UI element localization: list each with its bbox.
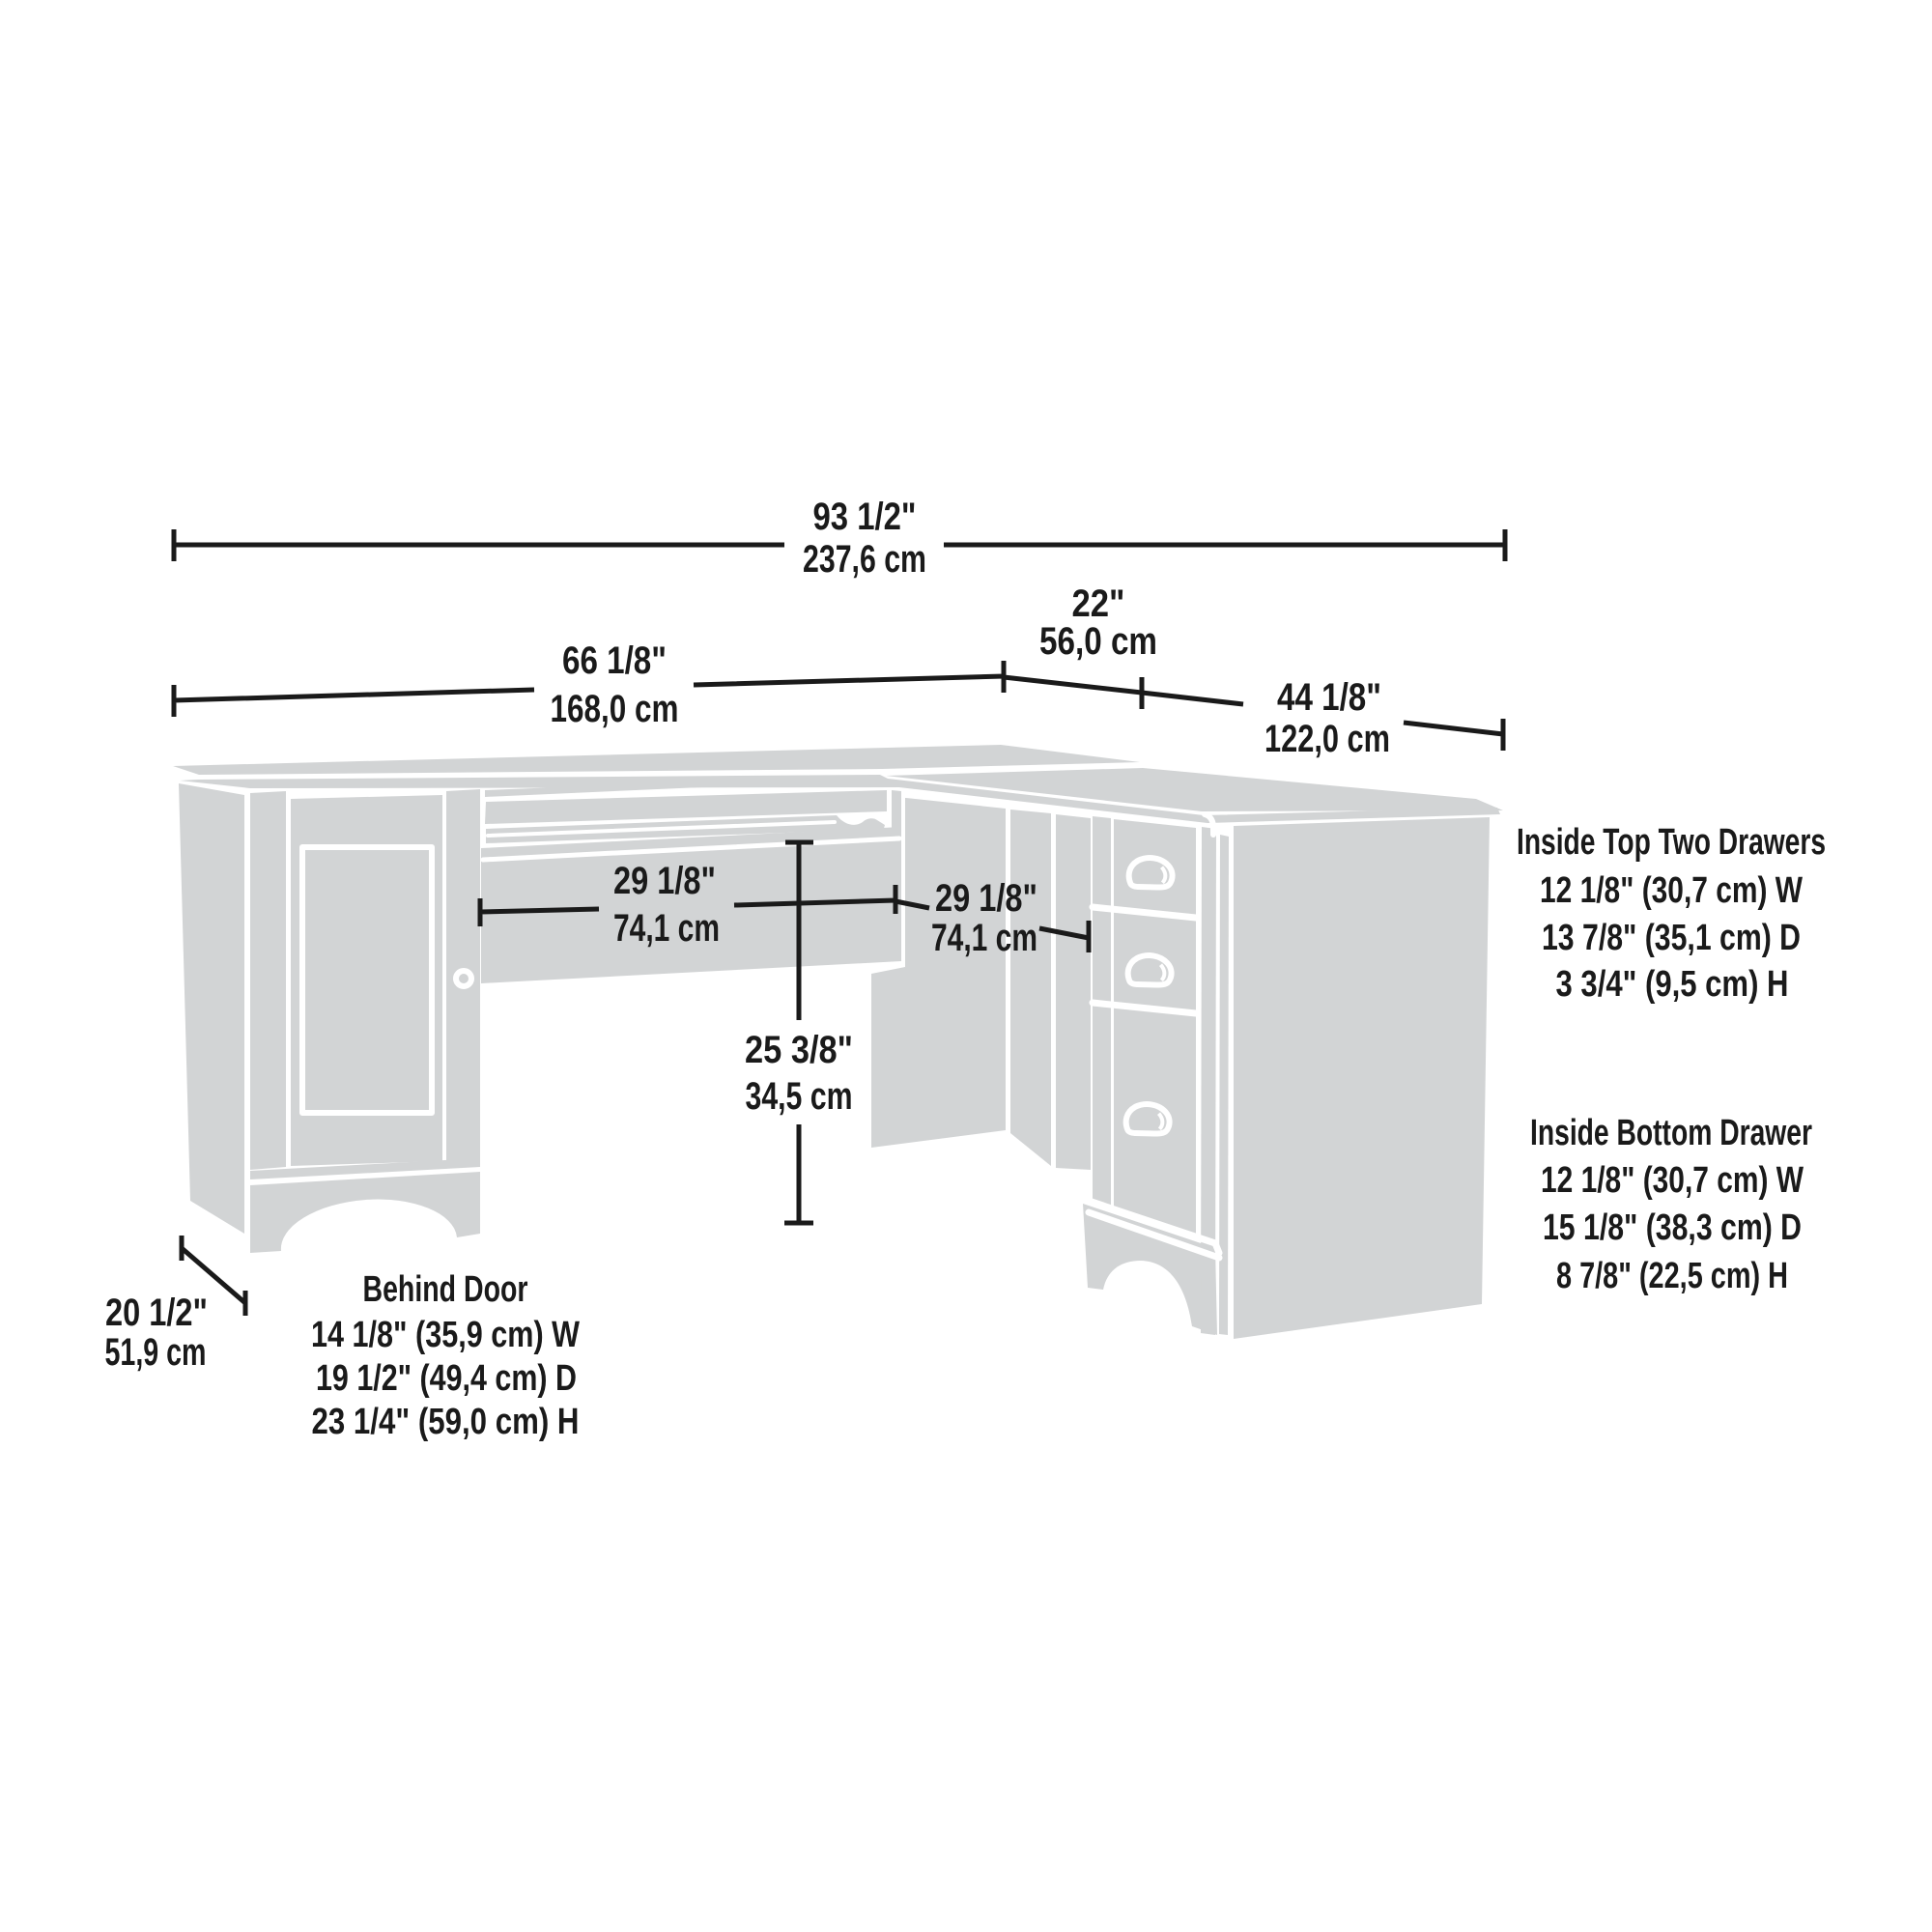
svg-text:51,9 cm: 51,9 cm [105, 1331, 207, 1374]
svg-text:Behind Door: Behind Door [363, 1269, 528, 1310]
svg-text:23 1/4" (59,0 cm) H: 23 1/4" (59,0 cm) H [312, 1402, 580, 1442]
svg-text:66 1/8": 66 1/8" [562, 639, 667, 682]
svg-text:74,1 cm: 74,1 cm [613, 907, 720, 950]
svg-text:237,6 cm: 237,6 cm [803, 538, 926, 581]
svg-text:93 1/2": 93 1/2" [813, 496, 917, 538]
svg-text:12 1/8" (30,7 cm) W: 12 1/8" (30,7 cm) W [1541, 1160, 1804, 1201]
svg-text:29 1/8": 29 1/8" [613, 860, 716, 902]
svg-text:25 3/8": 25 3/8" [745, 1029, 853, 1071]
svg-text:Inside Top Two Drawers: Inside Top Two Drawers [1517, 822, 1826, 863]
svg-text:122,0 cm: 122,0 cm [1264, 718, 1390, 760]
svg-text:29 1/8": 29 1/8" [935, 877, 1037, 920]
svg-text:15 1/8" (38,3 cm) D: 15 1/8" (38,3 cm) D [1543, 1207, 1802, 1248]
svg-text:56,0 cm: 56,0 cm [1039, 620, 1157, 663]
svg-text:12 1/8" (30,7 cm) W: 12 1/8" (30,7 cm) W [1540, 870, 1803, 911]
svg-text:14 1/8" (35,9 cm) W: 14 1/8" (35,9 cm) W [311, 1315, 580, 1355]
svg-text:19 1/2" (49,4 cm) D: 19 1/2" (49,4 cm) D [316, 1358, 577, 1399]
svg-text:8 7/8" (22,5 cm) H: 8 7/8" (22,5 cm) H [1556, 1256, 1788, 1296]
svg-text:3 3/4" (9,5 cm) H: 3 3/4" (9,5 cm) H [1556, 964, 1789, 1005]
svg-text:74,1 cm: 74,1 cm [931, 917, 1037, 959]
svg-text:44 1/8": 44 1/8" [1277, 676, 1381, 719]
svg-text:13 7/8" (35,1 cm) D: 13 7/8" (35,1 cm) D [1542, 918, 1801, 958]
svg-text:34,5 cm: 34,5 cm [746, 1075, 853, 1118]
svg-text:22": 22" [1072, 582, 1125, 625]
svg-text:168,0 cm: 168,0 cm [551, 688, 679, 730]
svg-text:20 1/2": 20 1/2" [105, 1292, 208, 1334]
svg-text:Inside Bottom Drawer: Inside Bottom Drawer [1530, 1113, 1812, 1153]
